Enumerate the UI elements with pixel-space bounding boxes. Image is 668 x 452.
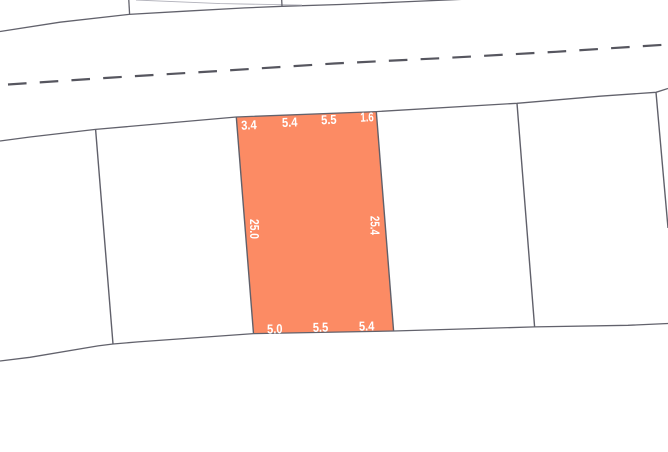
svg-text:5.5: 5.5 xyxy=(321,112,337,128)
svg-text:25.0: 25.0 xyxy=(247,219,262,239)
svg-text:25.4: 25.4 xyxy=(368,216,383,236)
svg-text:5.0: 5.0 xyxy=(267,321,283,336)
svg-text:5.5: 5.5 xyxy=(313,320,329,335)
svg-text:3.4: 3.4 xyxy=(241,117,258,133)
svg-text:1.6: 1.6 xyxy=(360,109,374,125)
svg-text:5.4: 5.4 xyxy=(282,114,299,130)
svg-text:5.4: 5.4 xyxy=(359,318,375,333)
